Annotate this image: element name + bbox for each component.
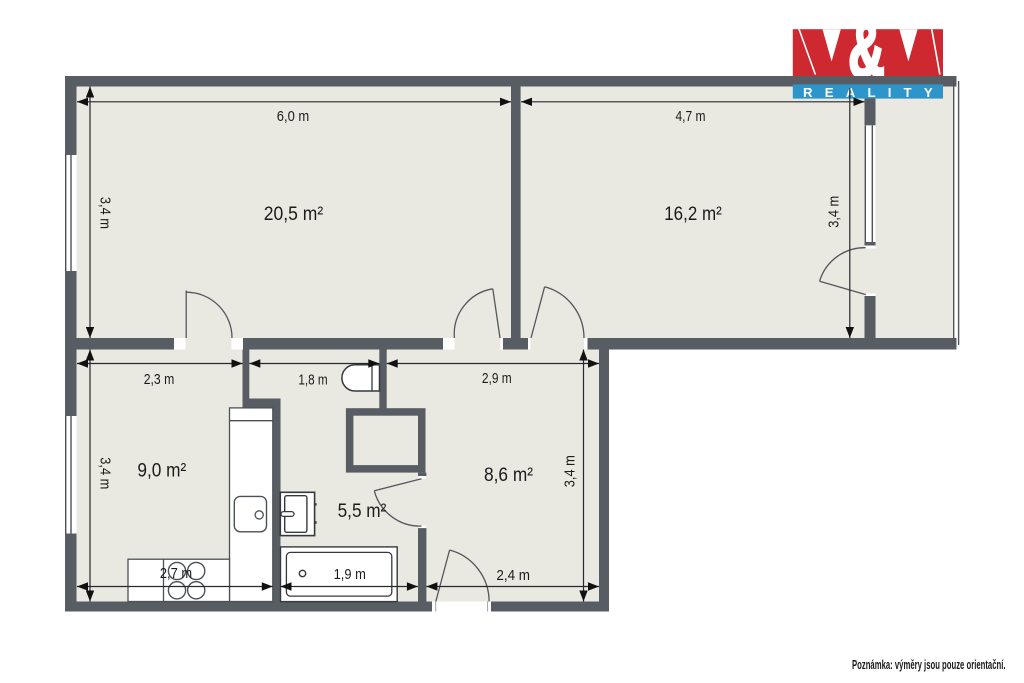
- svg-text:8,6 m²: 8,6 m²: [484, 465, 533, 486]
- svg-text:2,4 m: 2,4 m: [496, 567, 530, 584]
- svg-text:3,4 m: 3,4 m: [562, 455, 579, 487]
- svg-text:4,7 m: 4,7 m: [676, 108, 706, 125]
- svg-text:20,5 m²: 20,5 m²: [264, 204, 323, 225]
- svg-text:2,7 m: 2,7 m: [160, 565, 192, 582]
- svg-text:5,5 m²: 5,5 m²: [338, 501, 387, 522]
- svg-text:Poznámka: výměry jsou pouze or: Poznámka: výměry jsou pouze orientační.: [852, 658, 1006, 672]
- svg-text:16,2 m²: 16,2 m²: [664, 204, 722, 225]
- svg-text:2,9 m: 2,9 m: [482, 370, 512, 387]
- svg-text:1,8 m: 1,8 m: [298, 372, 327, 389]
- svg-text:6,0 m: 6,0 m: [277, 108, 310, 125]
- svg-text:9,0 m²: 9,0 m²: [137, 461, 186, 482]
- svg-text:REALITY: REALITY: [803, 85, 945, 100]
- svg-text:3,4 m: 3,4 m: [825, 196, 842, 228]
- svg-text:1,9 m: 1,9 m: [334, 566, 366, 583]
- svg-text:2,3 m: 2,3 m: [144, 371, 175, 388]
- svg-text:3,4 m: 3,4 m: [96, 197, 113, 229]
- svg-text:3,4 m: 3,4 m: [96, 457, 113, 489]
